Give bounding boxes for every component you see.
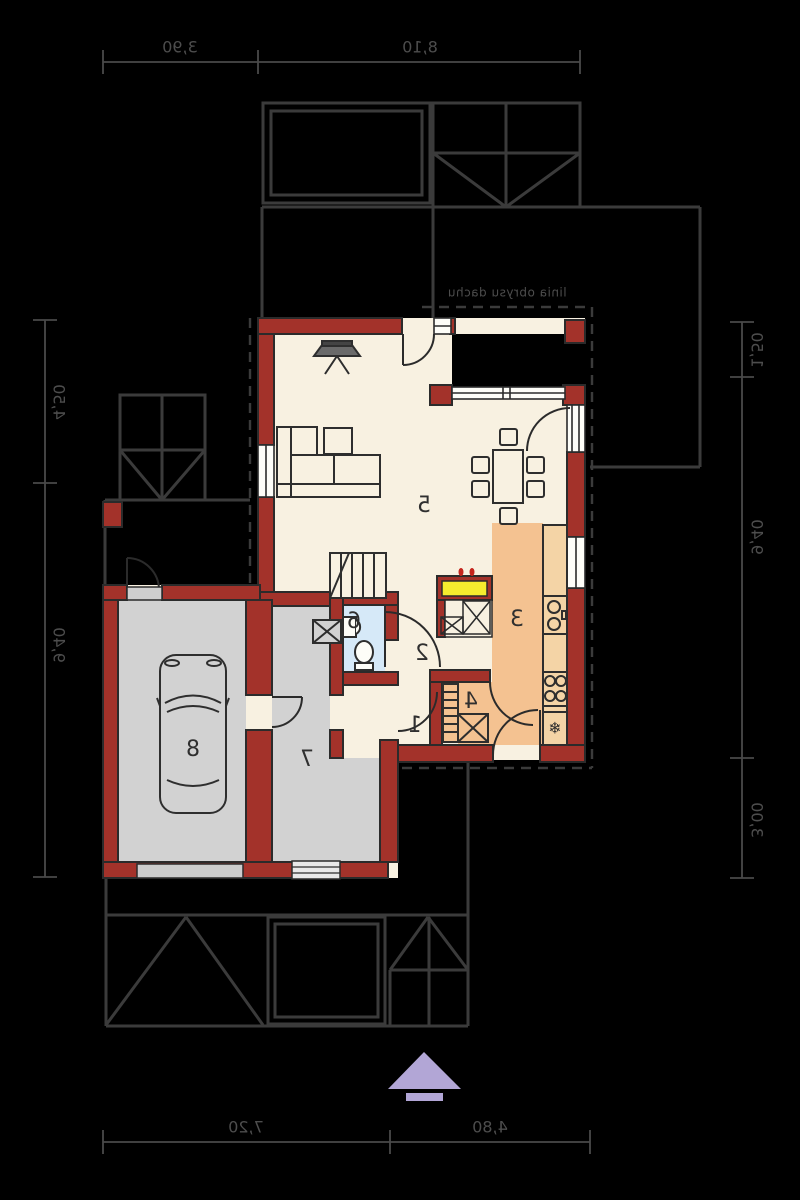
north-arrow-icon (388, 1052, 461, 1101)
kitchen-counter (543, 525, 567, 745)
room-label-6: 6 (347, 609, 361, 634)
dim-bottom-right: 4,80 (472, 1118, 508, 1137)
dim-left-upper: 4,50 (50, 384, 69, 420)
hall-floor (343, 686, 380, 758)
floor-plan-canvas: 3,90 8,10 7,20 4,80 4,50 9,40 1,50 9,40 … (0, 0, 800, 1200)
dim-right-1: 1,50 (748, 332, 767, 368)
room-label-1: 1 (408, 713, 422, 738)
hob-yellow-top (442, 581, 487, 596)
room-label-7: 7 (300, 747, 314, 772)
entrance-sill (127, 587, 162, 600)
gas-flame-icon (459, 568, 464, 576)
window (567, 537, 585, 588)
room-label-2: 2 (415, 641, 429, 666)
stairs (330, 553, 386, 598)
fridge-icon: ❄ (548, 719, 561, 738)
room-label-5: 5 (417, 493, 431, 518)
window (434, 318, 451, 334)
coffee-table (324, 428, 352, 454)
floor-plan-drawing: 3,90 8,10 7,20 4,80 4,50 9,40 1,50 9,40 … (0, 0, 800, 1200)
window-band (452, 387, 565, 399)
utility-floor (272, 606, 330, 862)
utility-floor-lower (330, 758, 380, 862)
dim-right-2: 9,40 (748, 519, 767, 555)
dim-left-lower: 9,40 (50, 627, 69, 663)
pantry-shelves (443, 684, 458, 742)
cabinet-x-symbol (313, 620, 341, 643)
window (258, 445, 274, 497)
entry-steps (292, 861, 340, 879)
dim-top-right: 8,10 (402, 38, 438, 57)
room-label-4: 4 (464, 689, 478, 714)
gas-flame-icon (470, 568, 475, 576)
car (157, 655, 229, 813)
dim-right-3: 3,00 (748, 802, 767, 838)
room-label-8: 8 (186, 737, 200, 762)
toilet (355, 641, 373, 670)
chimney (565, 320, 585, 343)
cabinet-x-symbol (458, 714, 488, 742)
garage-door (137, 864, 243, 878)
kitchen-floor (492, 523, 543, 745)
roof-outline-label: linia obrysu dachu (447, 286, 566, 300)
chimney (103, 502, 122, 527)
balcony-door-frame (567, 405, 585, 452)
room-label-3: 3 (510, 607, 524, 632)
dim-top-left: 3,90 (162, 38, 198, 57)
dim-bottom-left: 7,20 (228, 1118, 264, 1137)
